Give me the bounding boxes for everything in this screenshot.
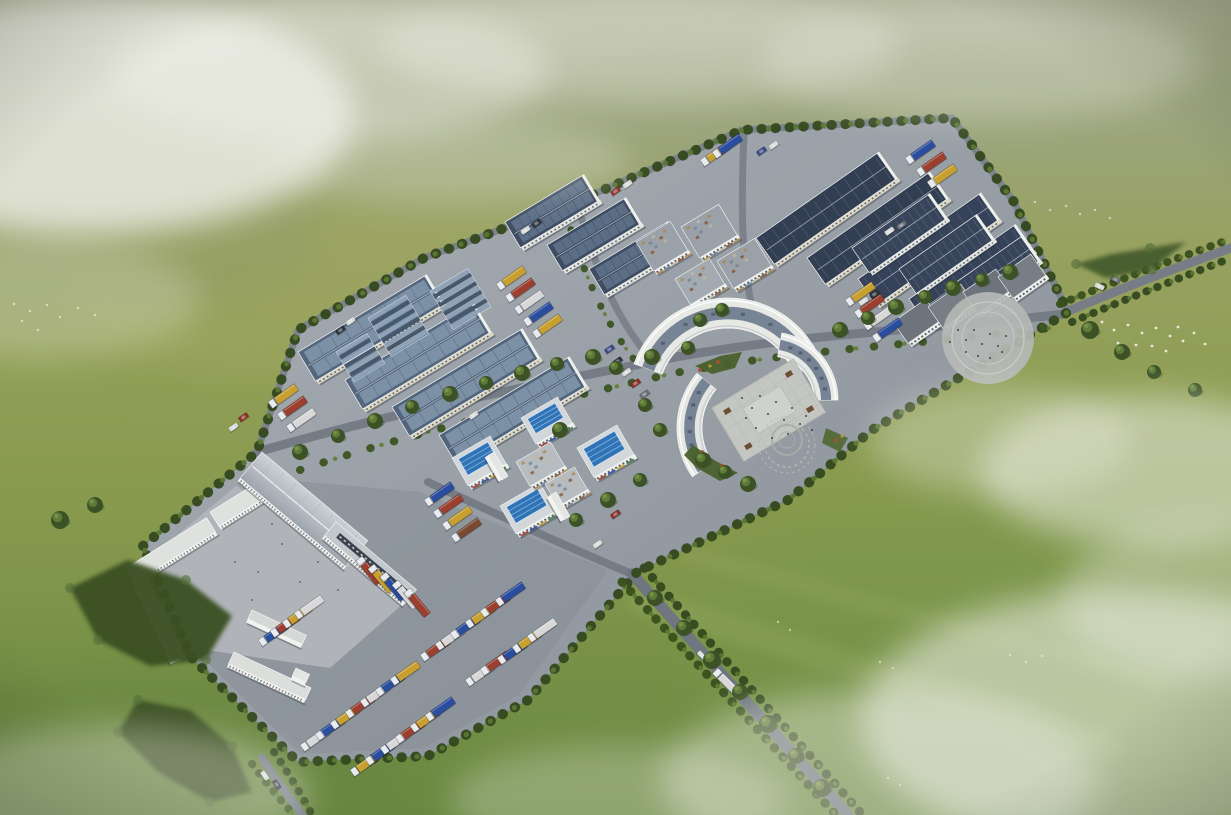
aerial-scene xyxy=(0,0,1231,815)
industrial-park-aerial-rendering xyxy=(0,0,1231,815)
scene-root xyxy=(0,0,1231,815)
vignette xyxy=(0,0,1231,815)
